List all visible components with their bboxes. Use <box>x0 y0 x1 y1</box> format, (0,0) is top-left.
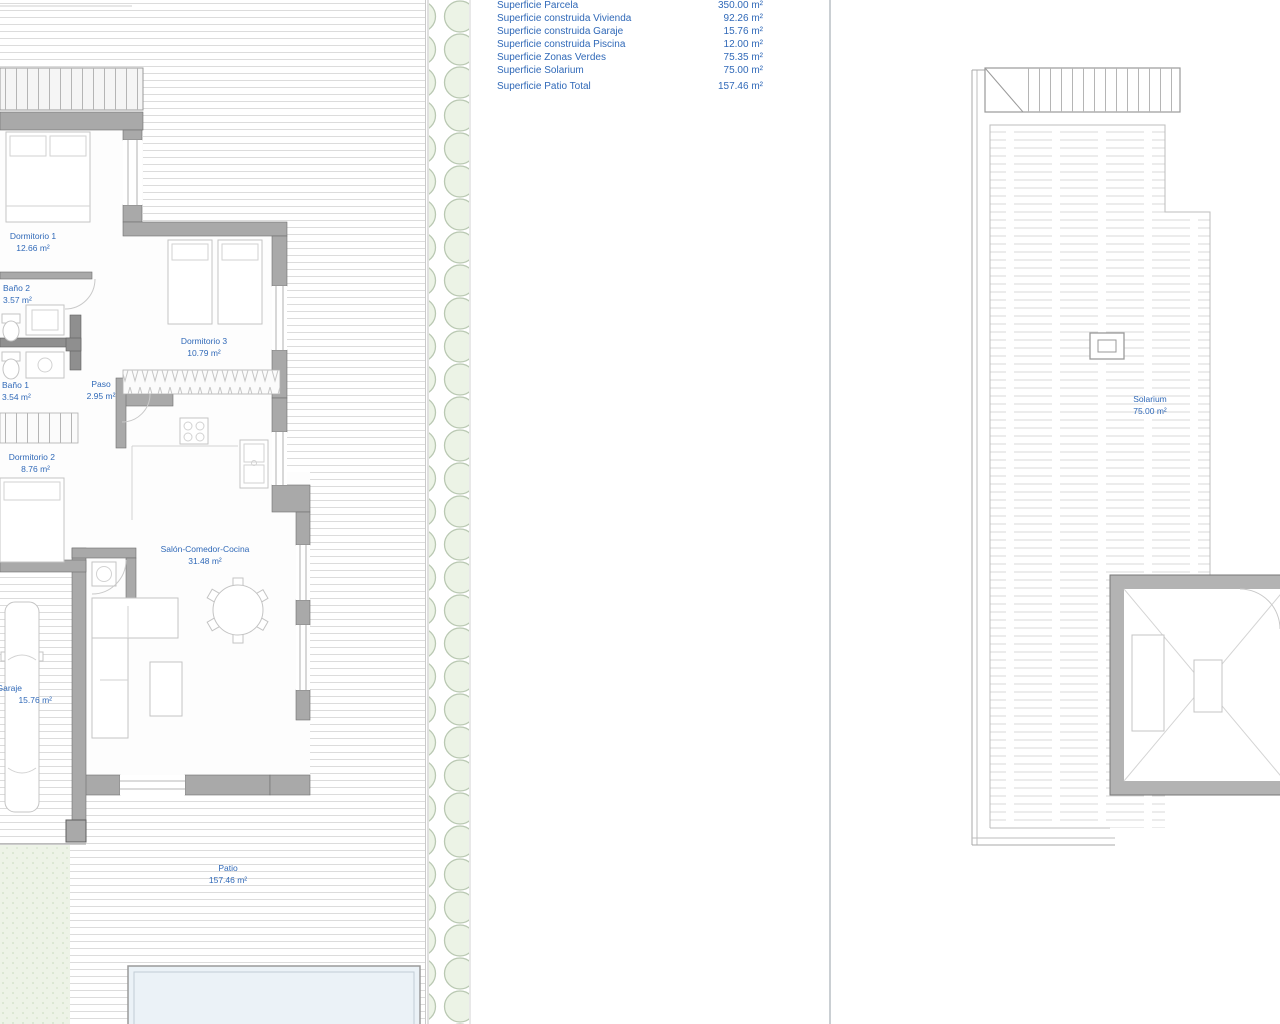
label-solarium-area: 75.00 m² <box>1133 406 1167 416</box>
table-row-value: 75.35 m² <box>724 52 764 63</box>
table-row-value: 75.00 m² <box>724 65 764 76</box>
label-dormitorio2-area: 8.76 m² <box>21 464 50 474</box>
toilet-bano2 <box>2 314 20 341</box>
fence-pillar <box>66 820 86 842</box>
label-paso-name: Paso <box>91 379 111 389</box>
table-row-value: 92.26 m² <box>724 13 764 24</box>
washing-machine <box>92 562 116 586</box>
pool <box>128 966 420 1024</box>
label-bano2-name: Baño 2 <box>3 283 30 293</box>
label-salon-name: Salón-Comedor-Cocina <box>161 544 250 554</box>
skylight <box>1090 333 1124 359</box>
label-garaje-area: 15.76 m² <box>18 695 52 705</box>
window-salon-1 <box>296 545 310 600</box>
table-row-value: 12.00 m² <box>724 39 764 50</box>
sink-kitchen <box>240 440 268 488</box>
label-salon-area: 31.48 m² <box>188 556 222 566</box>
roof-room <box>1110 575 1280 795</box>
label-dormitorio3-area: 10.79 m² <box>187 348 221 358</box>
table-row-value: 157.46 m² <box>718 81 764 92</box>
table-row-label: Superficie construida Vivienda <box>497 13 632 24</box>
wardrobe-dorm3 <box>123 370 280 394</box>
label-dormitorio1-area: 12.66 m² <box>16 243 50 253</box>
wardrobe-top-strip <box>0 68 143 110</box>
label-dormitorio3-name: Dormitorio 3 <box>181 336 228 346</box>
door-opening-patio <box>120 775 185 795</box>
shower-bano2 <box>26 305 64 335</box>
table-row-label: Superficie Solarium <box>497 65 584 76</box>
label-patio-area: 157.46 m² <box>209 875 247 885</box>
table-row-label: Superficie Patio Total <box>497 81 591 92</box>
coffee-table <box>150 662 182 716</box>
stairs <box>985 68 1180 112</box>
shower-strip-bano1 <box>0 413 78 443</box>
label-dormitorio1-name: Dormitorio 1 <box>10 231 57 241</box>
floorplan-canvas: Dormitorio 1 12.66 m² Baño 2 3.57 m² Dor… <box>0 0 1280 1024</box>
window-dorm3 <box>272 286 287 350</box>
roof-room-furniture-2 <box>1194 660 1222 712</box>
bed-dormitorio1 <box>6 132 90 222</box>
label-patio-name: Patio <box>218 863 238 873</box>
label-dormitorio2-name: Dormitorio 2 <box>9 452 56 462</box>
ground-floor-plan: Dormitorio 1 12.66 m² Baño 2 3.57 m² Dor… <box>0 0 470 1024</box>
car-mirror-right <box>39 652 43 661</box>
toilet-bano1 <box>2 352 20 379</box>
label-bano2-area: 3.57 m² <box>3 295 32 305</box>
car <box>1 602 43 812</box>
table-row-label: Superficie construida Garaje <box>497 26 624 37</box>
car-mirror-left <box>1 652 5 661</box>
label-bano1-area: 3.54 m² <box>2 392 31 402</box>
window-kitchen <box>272 432 287 485</box>
table-row-value: 350.00 m² <box>718 0 764 11</box>
table-row-label: Superficie Parcela <box>497 0 579 11</box>
garden-green <box>0 845 70 1024</box>
label-garaje-name: Garaje <box>0 683 22 693</box>
table-row-label: Superficie Zonas Verdes <box>497 52 606 63</box>
roof-room-furniture-1 <box>1132 635 1164 731</box>
floorplan-page: Dormitorio 1 12.66 m² Baño 2 3.57 m² Dor… <box>0 0 1280 1024</box>
label-bano1-name: Baño 1 <box>2 380 29 390</box>
hedge-strip <box>428 0 470 1024</box>
window-salon-2 <box>296 625 310 690</box>
table-row-value: 15.76 m² <box>724 26 764 37</box>
label-paso-area: 2.95 m² <box>87 391 116 401</box>
bed-dormitorio2 <box>0 478 64 562</box>
label-solarium-name: Solarium <box>1133 394 1167 404</box>
stove <box>180 418 208 444</box>
window-dorm1 <box>123 140 142 205</box>
sink-bano1 <box>26 352 64 378</box>
table-row-label: Superficie construida Piscina <box>497 39 626 50</box>
